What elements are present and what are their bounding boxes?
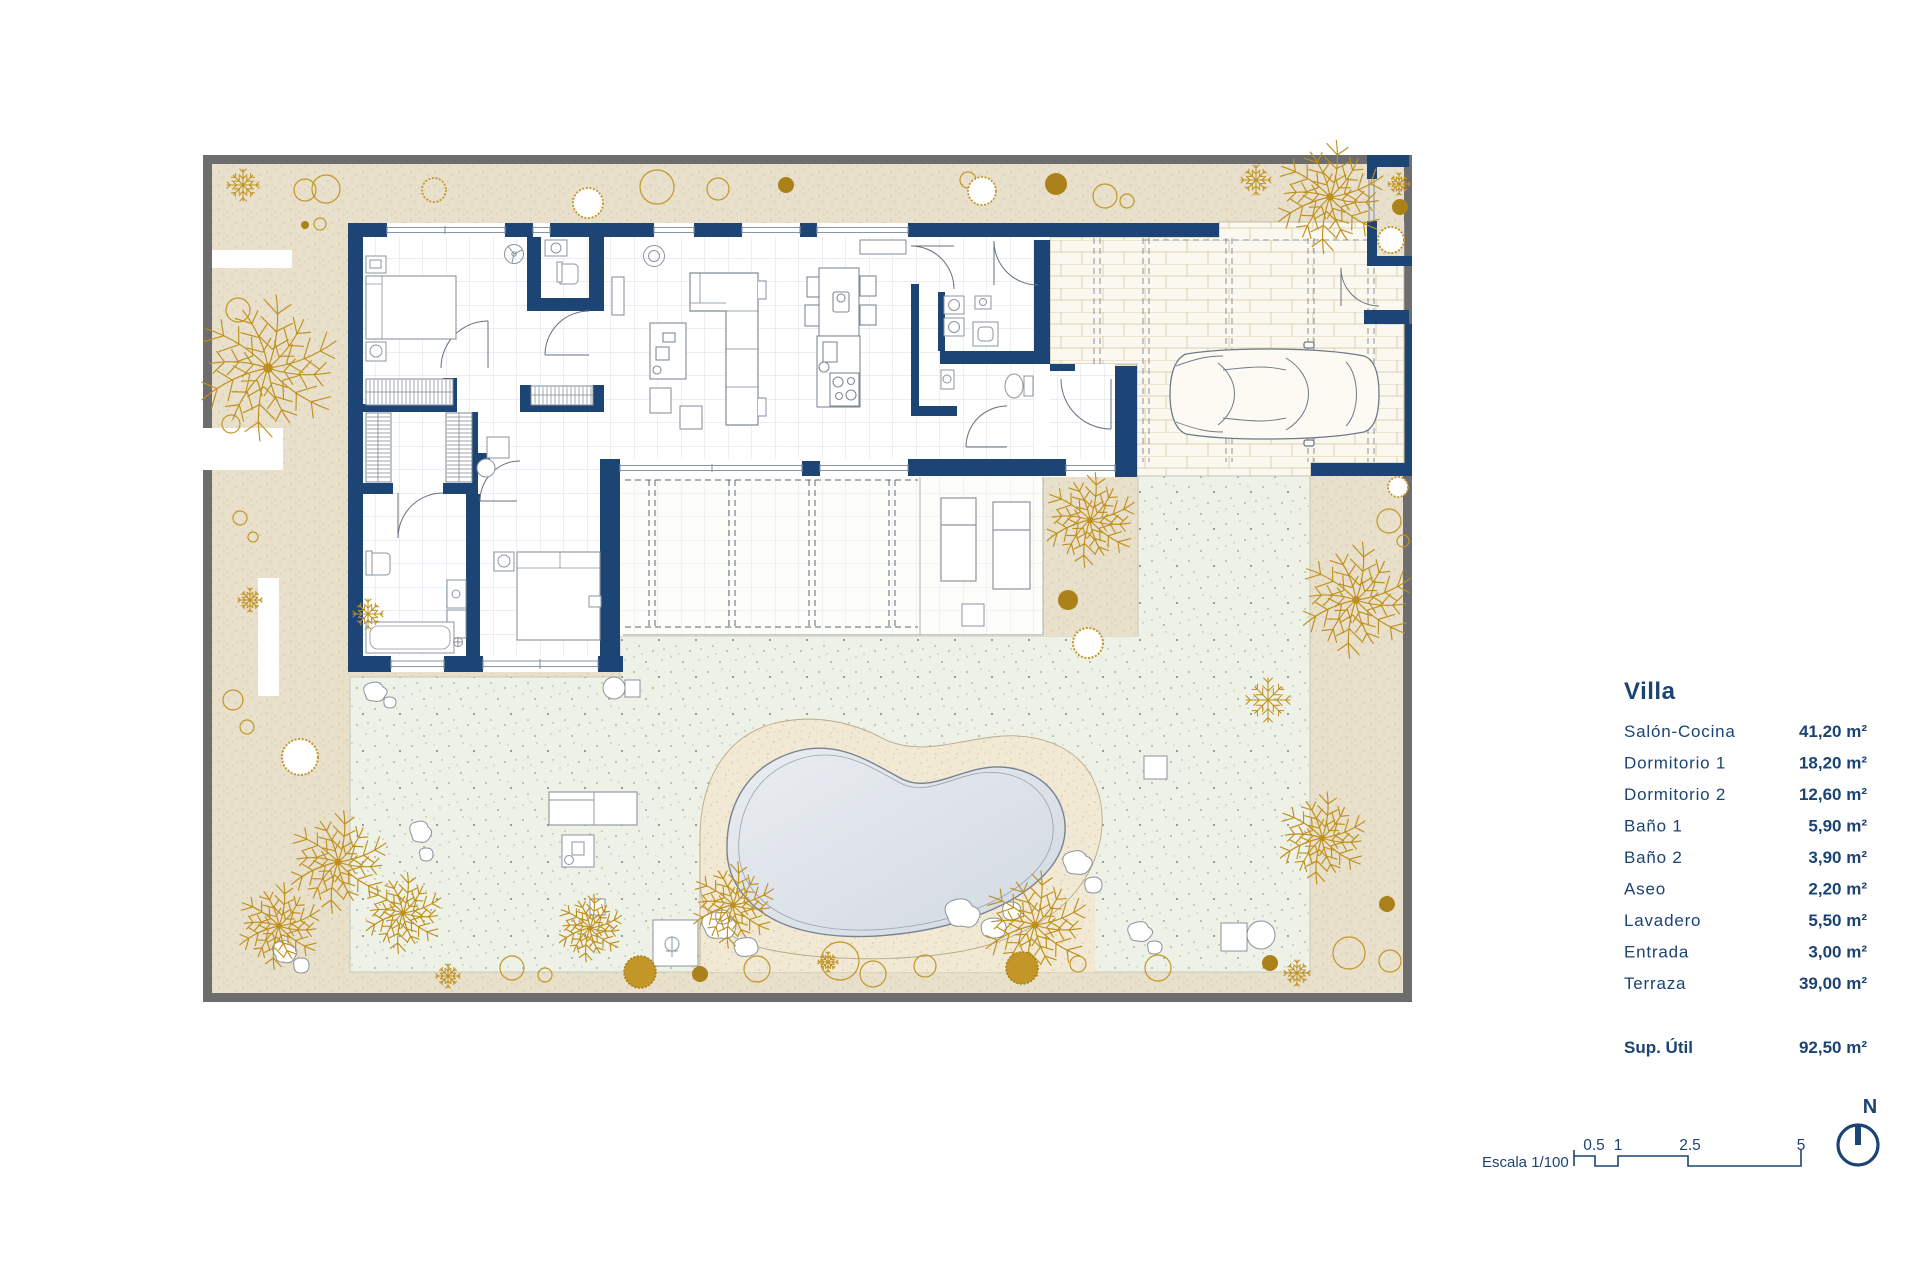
svg-text:Terraza: Terraza bbox=[1624, 974, 1686, 993]
svg-text:12,60 m²: 12,60 m² bbox=[1799, 785, 1867, 804]
svg-text:2,20 m²: 2,20 m² bbox=[1808, 880, 1867, 899]
svg-text:Dormitorio 1: Dormitorio 1 bbox=[1624, 754, 1726, 773]
svg-text:18,20 m²: 18,20 m² bbox=[1799, 754, 1867, 773]
svg-text:N: N bbox=[1863, 1096, 1877, 1118]
svg-text:Salón-Cocina: Salón-Cocina bbox=[1624, 722, 1736, 741]
svg-text:2.5: 2.5 bbox=[1679, 1137, 1701, 1154]
svg-text:3,90 m²: 3,90 m² bbox=[1808, 848, 1867, 867]
svg-text:41,20 m²: 41,20 m² bbox=[1799, 722, 1867, 741]
svg-text:3,00 m²: 3,00 m² bbox=[1808, 943, 1867, 962]
svg-text:5,90 m²: 5,90 m² bbox=[1808, 817, 1867, 836]
svg-text:Dormitorio 2: Dormitorio 2 bbox=[1624, 785, 1726, 804]
svg-text:5: 5 bbox=[1797, 1137, 1806, 1154]
svg-text:Escala 1/100: Escala 1/100 bbox=[1482, 1154, 1569, 1171]
svg-text:Lavadero: Lavadero bbox=[1624, 911, 1701, 930]
svg-text:1: 1 bbox=[1614, 1137, 1623, 1154]
svg-text:Aseo: Aseo bbox=[1624, 880, 1666, 899]
svg-text:Sup. Útil: Sup. Útil bbox=[1624, 1038, 1693, 1057]
svg-text:92,50 m²: 92,50 m² bbox=[1799, 1038, 1867, 1057]
svg-text:Baño 2: Baño 2 bbox=[1624, 848, 1683, 867]
svg-text:Villa: Villa bbox=[1624, 678, 1676, 705]
svg-text:5,50 m²: 5,50 m² bbox=[1808, 911, 1867, 930]
svg-text:Baño 1: Baño 1 bbox=[1624, 817, 1683, 836]
svg-text:0.5: 0.5 bbox=[1583, 1137, 1605, 1154]
svg-text:Entrada: Entrada bbox=[1624, 943, 1689, 962]
svg-text:39,00 m²: 39,00 m² bbox=[1799, 974, 1867, 993]
